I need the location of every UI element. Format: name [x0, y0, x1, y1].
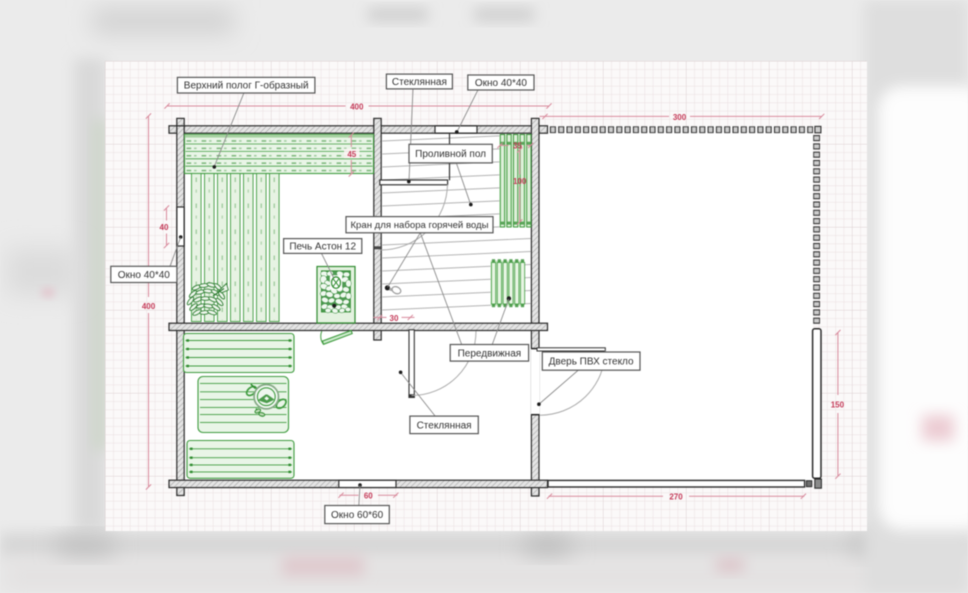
svg-text:150: 150 [831, 401, 845, 410]
svg-text:Окно 40*40: Окно 40*40 [118, 270, 171, 281]
svg-text:Кран для набора горячей воды: Кран для набора горячей воды [350, 220, 488, 231]
svg-text:270: 270 [669, 493, 683, 502]
svg-text:400: 400 [142, 302, 156, 311]
svg-text:Печь Астон 12: Печь Астон 12 [289, 242, 356, 253]
svg-text:400: 400 [350, 103, 364, 112]
svg-text:Стеклянная: Стеклянная [417, 420, 472, 431]
svg-text:Передвижная: Передвижная [458, 348, 522, 359]
svg-text:45: 45 [347, 150, 356, 159]
svg-text:35: 35 [513, 142, 522, 151]
svg-text:Стеклянная: Стеклянная [392, 77, 447, 88]
svg-text:40: 40 [160, 223, 169, 232]
svg-text:300: 300 [673, 113, 687, 122]
svg-text:Верхний полог Г-образный: Верхний полог Г-образный [184, 80, 309, 92]
svg-text:Дверь ПВХ стекло: Дверь ПВХ стекло [549, 357, 634, 368]
svg-text:Проливной пол: Проливной пол [415, 149, 486, 160]
svg-text:60: 60 [364, 492, 373, 501]
svg-text:30: 30 [390, 314, 399, 323]
svg-text:Окно 60*60: Окно 60*60 [331, 510, 384, 521]
svg-text:Окно 40*40: Окно 40*40 [475, 78, 528, 89]
svg-text:100: 100 [513, 177, 527, 186]
